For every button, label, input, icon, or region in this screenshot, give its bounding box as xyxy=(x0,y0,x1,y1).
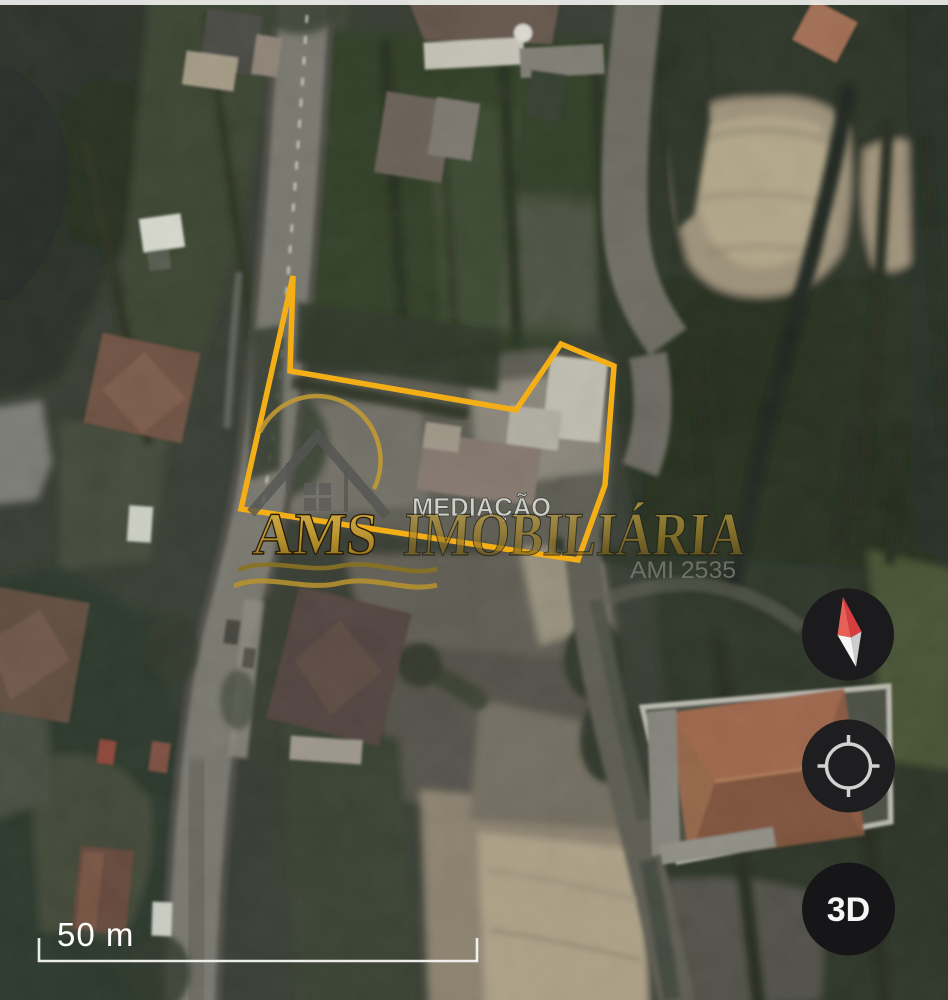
svg-text:AMI 2535: AMI 2535 xyxy=(630,557,736,584)
svg-text:50 m: 50 m xyxy=(57,916,134,953)
svg-text:3D: 3D xyxy=(827,891,870,929)
svg-text:AMS: AMS xyxy=(251,500,380,567)
